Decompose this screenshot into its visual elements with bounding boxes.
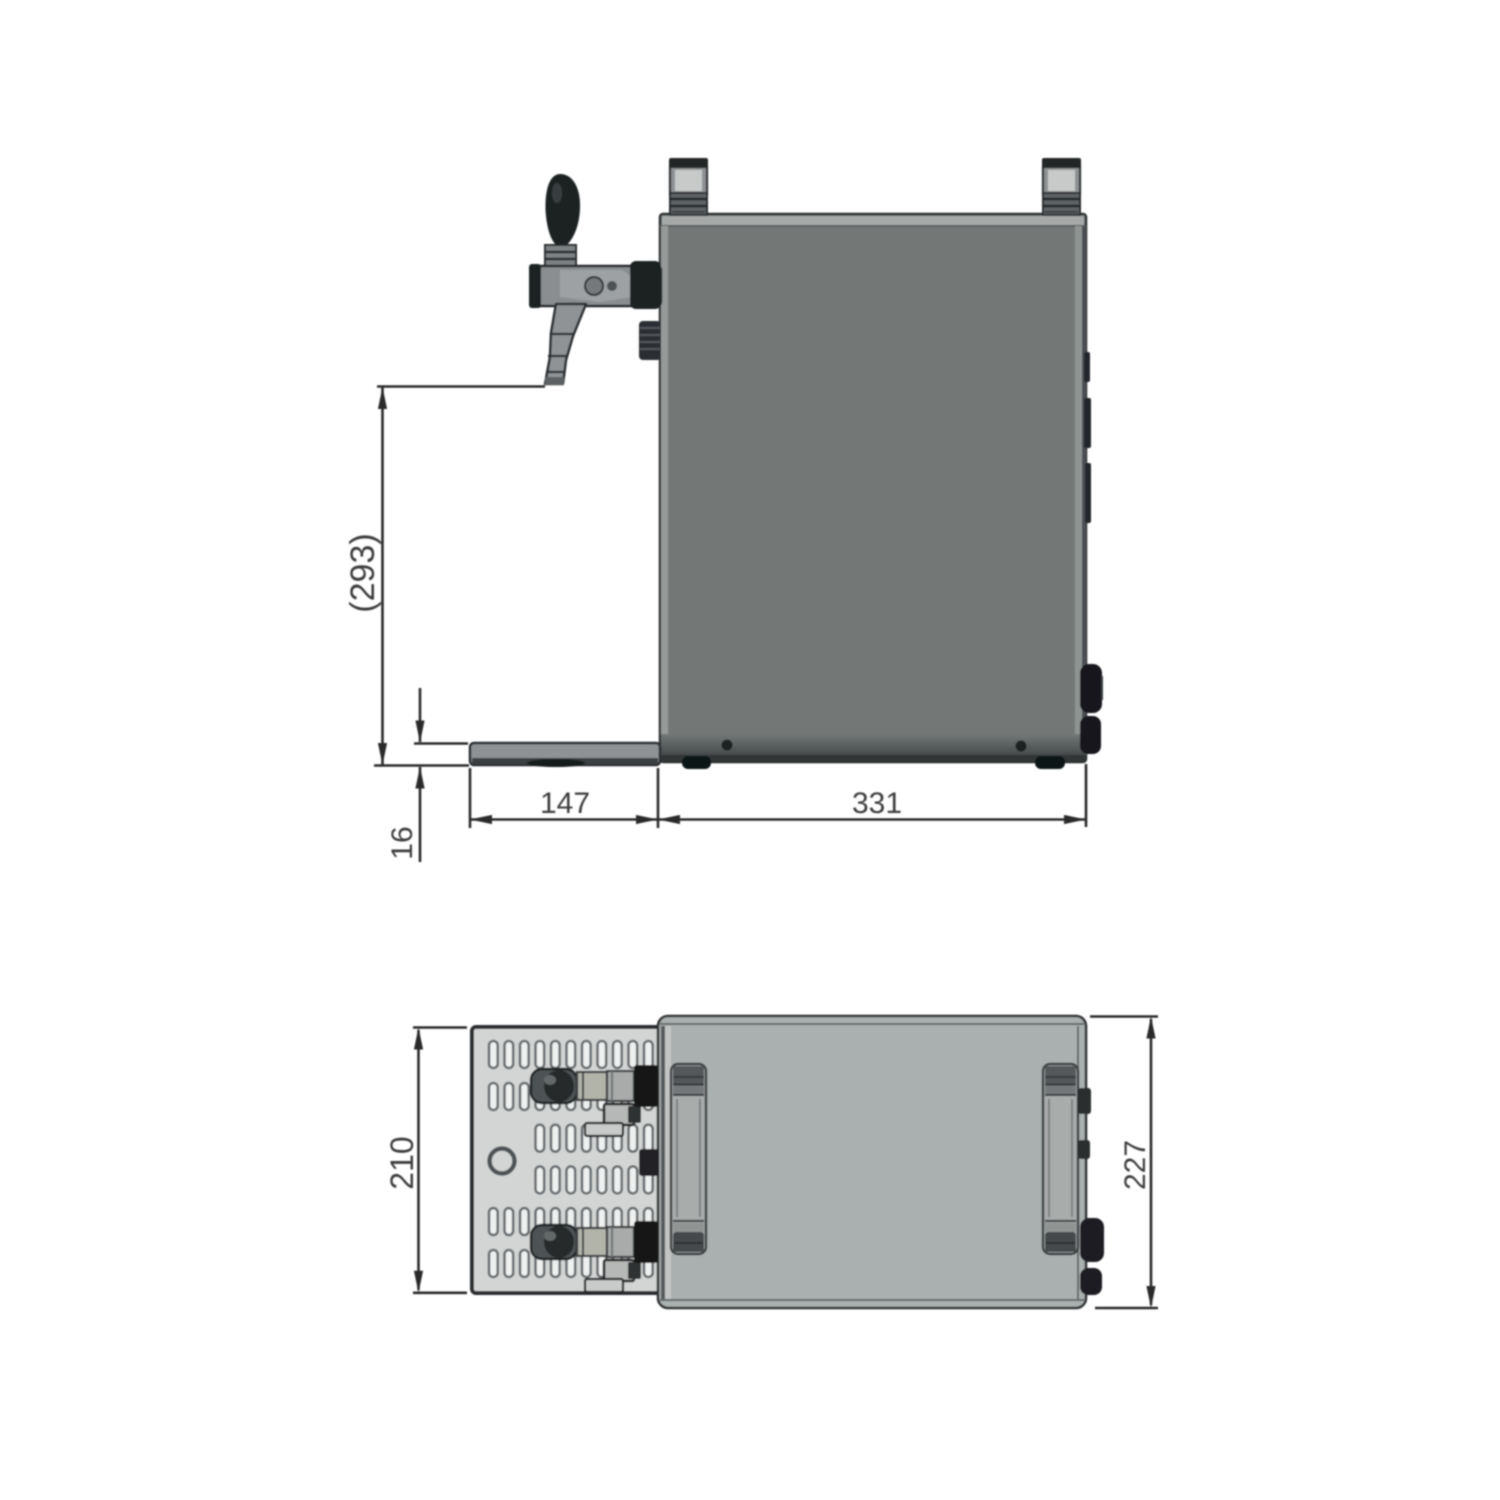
svg-text:16: 16 [386,826,419,859]
svg-text:210: 210 [384,1136,420,1189]
svg-text:147: 147 [540,787,590,820]
svg-text:(293): (293) [344,533,382,612]
svg-text:227: 227 [1119,1140,1152,1190]
svg-text:331: 331 [852,787,902,820]
